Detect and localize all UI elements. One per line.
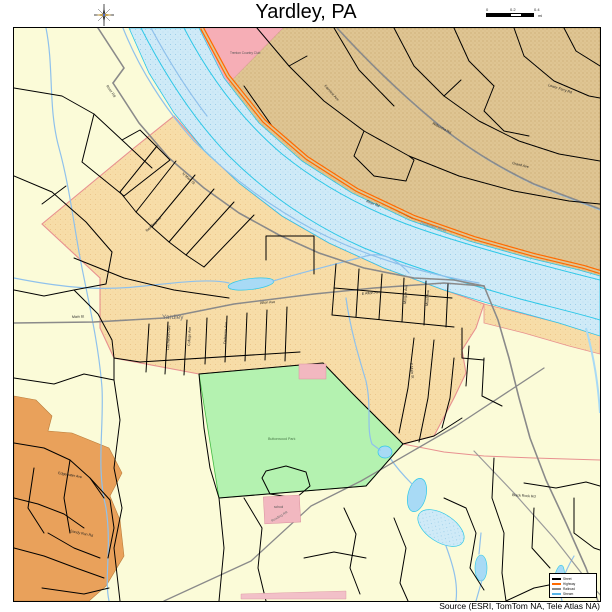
scale-bar: 00.20.4 mi: [486, 7, 556, 21]
scale-bar-unit: mi: [538, 13, 542, 18]
scale-tick-label: 0.4: [534, 7, 540, 12]
legend-label: Stream: [563, 592, 573, 596]
legend-box: StreetHighwayRailroadStream: [549, 573, 597, 598]
legend-swatch: [552, 578, 561, 580]
tiny-label: school: [274, 505, 284, 509]
building-park-north: [299, 364, 326, 379]
tiny-label: Trenton Country Club: [230, 51, 261, 55]
pond-park: [378, 446, 392, 458]
park-label: Buttonwood Park: [268, 437, 296, 441]
map-frame: YardleyN Main StS Main StMain StAfton Av…: [13, 27, 601, 602]
scale-bar-segment: [522, 13, 534, 17]
legend-row: Stream: [552, 591, 594, 596]
legend-label: Highway: [563, 582, 575, 586]
place-label: Yardley: [162, 314, 184, 321]
scale-bar-segment: [510, 13, 522, 17]
scale-bar-segments: [486, 13, 556, 18]
building-school: [263, 495, 300, 524]
source-attribution: Source (ESRI, TomTom NA, Tele Atlas NA): [439, 601, 600, 611]
street-label: Main St: [72, 315, 84, 319]
legend-swatch: [552, 583, 561, 585]
scale-tick-label: 0.2: [510, 7, 516, 12]
map-canvas: YardleyN Main StS Main StMain StAfton Av…: [14, 28, 600, 601]
legend-swatch: [552, 593, 561, 595]
scale-bar-segment: [486, 13, 510, 17]
pond-c: [475, 555, 487, 581]
scale-tick-label: 0: [486, 7, 488, 12]
legend-label: Street: [563, 577, 572, 581]
legend-label: Railroad: [563, 587, 575, 591]
legend-swatch: [552, 588, 561, 590]
page-root: Yardley, PA 00.20.4 mi: [0, 0, 612, 612]
